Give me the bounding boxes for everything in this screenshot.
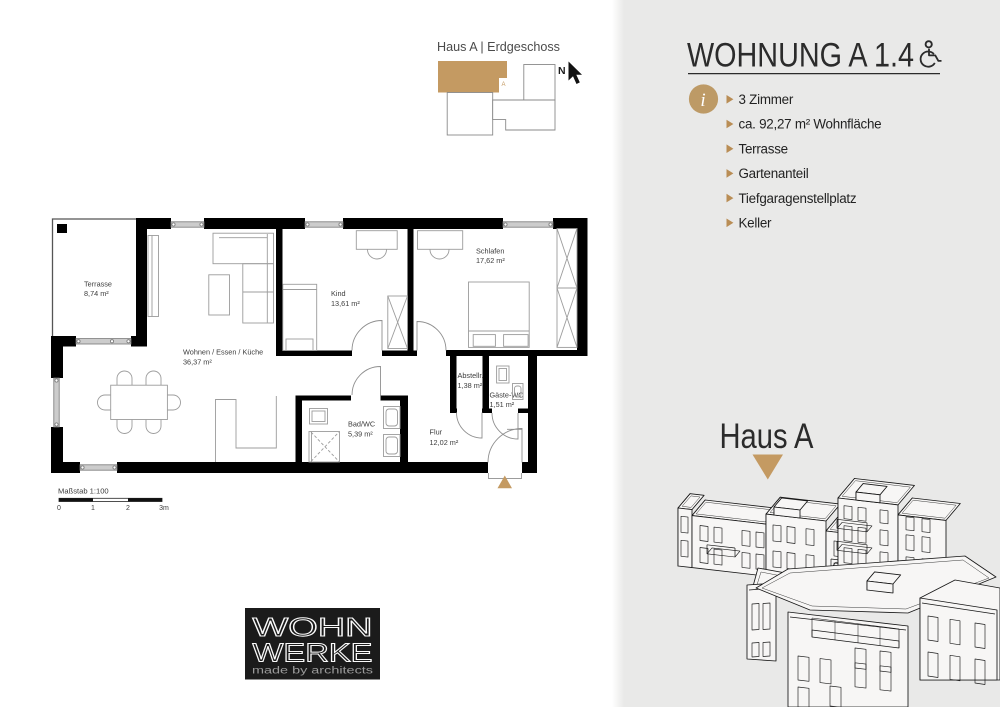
svg-text:Gäste-WC: Gäste-WC bbox=[490, 391, 524, 400]
svg-text:Gartenanteil: Gartenanteil bbox=[739, 166, 809, 181]
svg-text:A: A bbox=[502, 82, 506, 88]
svg-text:1: 1 bbox=[91, 505, 95, 512]
svg-text:Wohnen / Essen / Küche: Wohnen / Essen / Küche bbox=[183, 348, 263, 357]
svg-text:3 Zimmer: 3 Zimmer bbox=[739, 92, 794, 107]
svg-text:N: N bbox=[558, 65, 566, 77]
svg-text:36,37 m²: 36,37 m² bbox=[183, 358, 212, 367]
svg-text:Maßstab 1:100: Maßstab 1:100 bbox=[58, 487, 109, 496]
svg-text:Flur: Flur bbox=[430, 428, 443, 437]
svg-text:WOHNUNG A 1.4: WOHNUNG A 1.4 bbox=[687, 37, 914, 75]
svg-text:WERKE: WERKE bbox=[253, 640, 373, 668]
svg-text:Keller: Keller bbox=[739, 216, 773, 231]
svg-text:Haus A: Haus A bbox=[720, 417, 815, 456]
svg-text:Kind: Kind bbox=[331, 289, 346, 298]
svg-text:13,61 m²: 13,61 m² bbox=[331, 299, 360, 308]
svg-text:Schlafen: Schlafen bbox=[476, 247, 504, 256]
svg-text:3m: 3m bbox=[159, 505, 169, 512]
svg-text:Bad/WC: Bad/WC bbox=[348, 420, 375, 429]
svg-text:made by architects: made by architects bbox=[252, 666, 373, 677]
svg-text:1,51 m²: 1,51 m² bbox=[490, 400, 515, 409]
svg-text:0: 0 bbox=[57, 505, 61, 512]
svg-text:Haus A | Erdgeschoss: Haus A | Erdgeschoss bbox=[437, 40, 560, 54]
svg-text:WOHN: WOHN bbox=[253, 614, 373, 642]
svg-text:ca. 92,27 m² Wohnfläche: ca. 92,27 m² Wohnfläche bbox=[739, 117, 882, 132]
svg-text:8,74 m²: 8,74 m² bbox=[84, 289, 109, 298]
svg-text:Abstellr.: Abstellr. bbox=[458, 371, 484, 380]
svg-text:5,39 m²: 5,39 m² bbox=[348, 430, 373, 439]
svg-text:2: 2 bbox=[126, 505, 130, 512]
svg-text:Terrasse: Terrasse bbox=[739, 141, 788, 156]
svg-text:Terrasse: Terrasse bbox=[84, 280, 112, 289]
svg-text:Tiefgaragenstellplatz: Tiefgaragenstellplatz bbox=[739, 191, 857, 206]
svg-text:12,02 m²: 12,02 m² bbox=[430, 438, 459, 447]
svg-text:1,38 m²: 1,38 m² bbox=[458, 381, 483, 390]
svg-text:i: i bbox=[700, 90, 705, 111]
svg-text:17,62 m²: 17,62 m² bbox=[476, 256, 505, 265]
